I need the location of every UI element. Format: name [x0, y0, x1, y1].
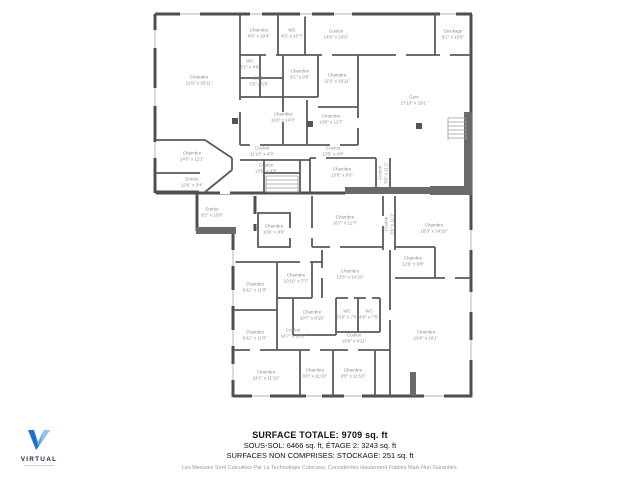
logo-tagline — [24, 465, 54, 468]
surface-by-floor: SOUS-SOL: 6466 sq. ft, ÉTAGE 2: 3243 sq.… — [0, 441, 640, 450]
surface-excluded: SURFACES NON COMPRISES: STOCKAGE: 251 sq… — [0, 451, 640, 460]
floorplan-page: Chambre9'6" x 10'4"WC4'5" x 10'7"Couloir… — [0, 0, 640, 480]
logo-brand-text: VIRTUAL — [16, 456, 62, 463]
virtual-logo: VIRTUAL — [16, 430, 62, 468]
surface-summary: SURFACE TOTALE: 9709 sq. ft SOUS-SOL: 64… — [0, 430, 640, 471]
window-icon — [155, 14, 471, 396]
floorplan-drawing — [0, 0, 640, 480]
v-logo-icon — [26, 430, 52, 450]
measurement-disclaimer: Les Mesures Sont Calculées Par La Techno… — [0, 465, 640, 471]
surface-total: SURFACE TOTALE: 9709 sq. ft — [0, 430, 640, 440]
staircase-icon — [266, 118, 466, 192]
